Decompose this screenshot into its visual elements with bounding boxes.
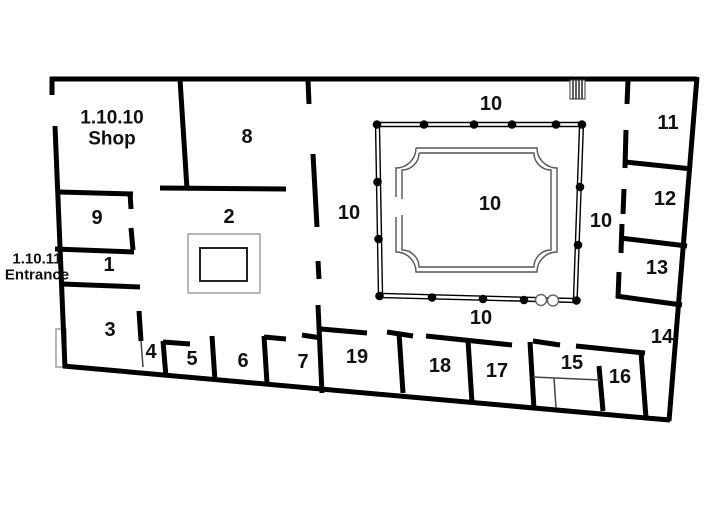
entrance-id-label: 1.10.11	[12, 252, 61, 267]
column-icon	[479, 295, 488, 304]
floor-plan: 1.10.10 Shop 1.10.11 Entrance 1 2 3 4 5 …	[0, 0, 706, 532]
column-base-icon	[536, 295, 547, 306]
room-label-7: 7	[297, 352, 308, 372]
wall-segment	[641, 352, 646, 418]
column-icon	[374, 235, 383, 244]
wall-segment	[313, 154, 317, 227]
impluvium-outer-rect	[188, 234, 260, 293]
room-label-5: 5	[186, 349, 197, 369]
wall-segment	[308, 80, 309, 104]
wall-segment	[62, 284, 140, 287]
room-label-1: 1	[103, 255, 114, 275]
garden-border-outer	[396, 148, 557, 272]
room-label-3: 3	[104, 320, 115, 340]
wall-segment	[163, 342, 190, 344]
wall-segment	[399, 333, 403, 393]
wall-segment	[468, 340, 472, 403]
wall-segment	[616, 296, 682, 305]
column-icon	[508, 120, 517, 129]
wall-segment	[55, 249, 134, 252]
interior-walls	[55, 79, 692, 418]
column-icon	[470, 120, 479, 129]
garden-border-inner	[402, 153, 551, 267]
room15-feature-line	[533, 377, 600, 380]
room-label-4: 4	[145, 342, 156, 362]
entrance-name-label: Entrance	[5, 268, 69, 283]
wall-segment	[59, 192, 133, 194]
corridor-bottom-label: 10	[470, 308, 492, 328]
corridor-left-label: 10	[338, 203, 360, 223]
impluvium	[188, 234, 260, 293]
room-label-13: 13	[646, 258, 668, 278]
impluvium-inner-rect	[200, 248, 247, 281]
column-icon	[576, 183, 585, 192]
wall-segment	[131, 228, 133, 250]
corridor-right-label: 10	[590, 211, 612, 231]
room-label-15: 15	[561, 353, 583, 373]
column-icon	[375, 292, 384, 301]
wall-segment	[180, 79, 187, 189]
column-icon	[572, 296, 581, 305]
wall-segment	[627, 80, 628, 104]
wall-segment	[264, 336, 267, 383]
column-bases	[536, 295, 559, 307]
shop-id-label: 1.10.10	[80, 109, 143, 128]
room-label-16: 16	[609, 367, 631, 387]
stairs-icon	[570, 80, 585, 99]
wall-segment	[321, 329, 367, 333]
wall-segment	[63, 366, 670, 420]
column-icon	[373, 178, 382, 187]
column-icon	[420, 120, 429, 129]
wall-segment	[163, 341, 166, 377]
wall-segment	[599, 366, 603, 411]
corridor-top-label: 10	[480, 94, 502, 114]
room-label-2: 2	[223, 207, 234, 227]
wall-segment	[318, 305, 322, 393]
wall-segment	[620, 238, 687, 246]
wall-segment	[576, 346, 645, 353]
wall-segment	[625, 162, 692, 169]
room15-feature-line	[554, 378, 556, 408]
column-icon	[373, 120, 382, 129]
wall-segment	[212, 336, 215, 381]
room-label-11: 11	[657, 113, 678, 133]
column-icon	[578, 120, 587, 129]
room-label-6: 6	[237, 351, 248, 371]
column-icon	[574, 241, 583, 250]
room-label-8: 8	[241, 127, 252, 147]
wall-segment	[139, 311, 141, 341]
courtyard-label: 10	[479, 194, 501, 214]
room-label-14: 14	[651, 327, 673, 347]
room-label-12: 12	[654, 189, 676, 209]
room-label-19: 19	[346, 347, 368, 367]
wall-segment	[533, 341, 560, 345]
wall-segment	[623, 189, 624, 214]
shop-name-label: Shop	[88, 130, 136, 149]
wall-segment	[530, 342, 534, 409]
wall-segment	[160, 188, 286, 189]
wall-segment	[130, 193, 131, 209]
column-icon	[520, 296, 529, 305]
room-label-17: 17	[486, 361, 508, 381]
room-label-9: 9	[91, 208, 102, 228]
room-label-18: 18	[429, 356, 451, 376]
threshold-line	[141, 341, 143, 367]
column-icon	[428, 293, 437, 302]
column-icon	[552, 120, 561, 129]
wall-segment	[264, 337, 286, 339]
wall-segment	[318, 261, 319, 279]
garden-border	[396, 148, 557, 272]
column-base-icon	[548, 295, 559, 306]
